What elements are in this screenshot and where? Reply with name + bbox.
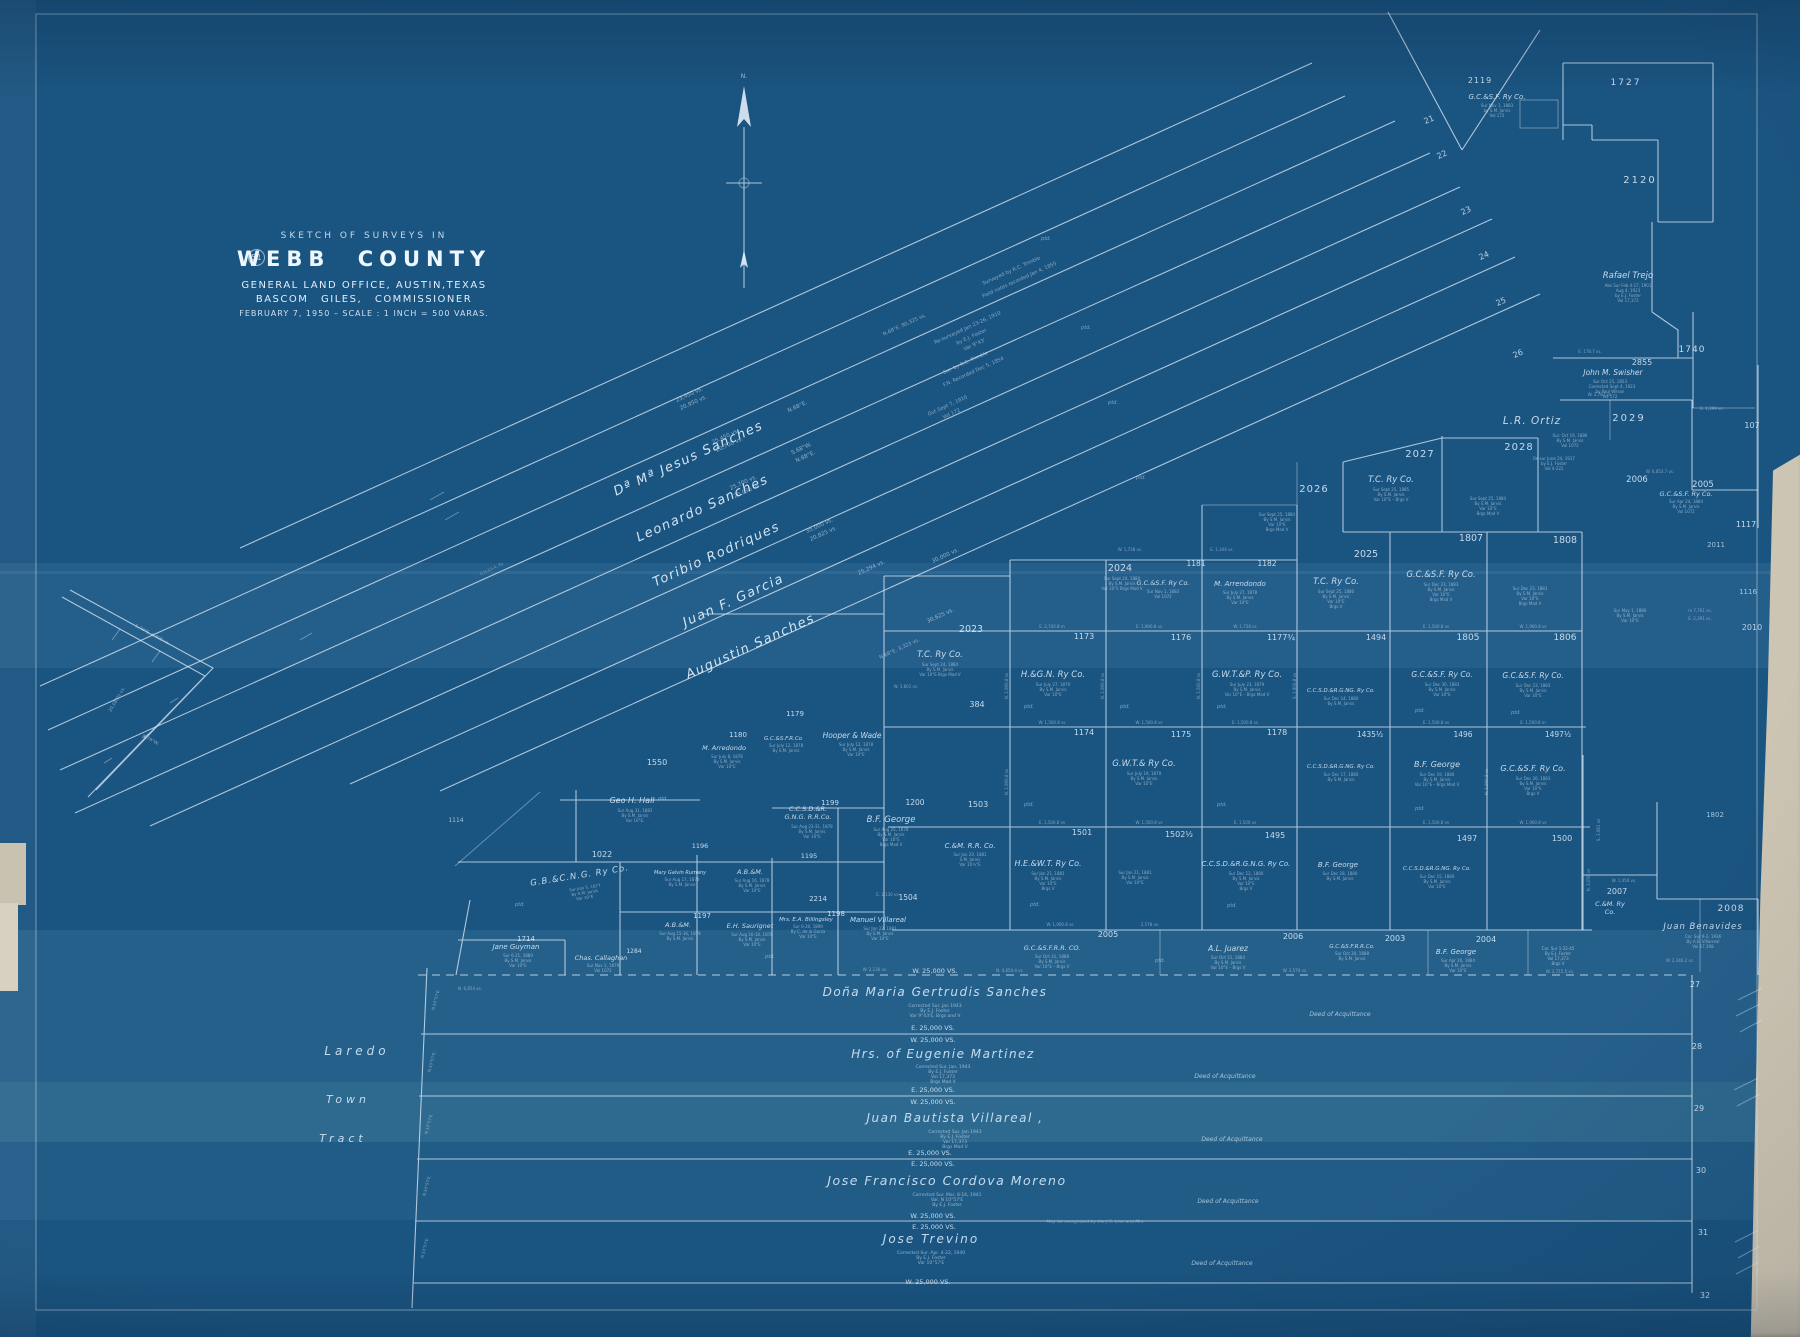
note: By S.M. Jarvis [1038, 959, 1065, 964]
note: By E.J. Foster [916, 1255, 946, 1261]
note: Sur July 12, 1878 [839, 742, 874, 747]
ptd-mark: ptd. [1414, 708, 1425, 714]
note: By S.M. Jarvis [1232, 876, 1259, 881]
note: Sur Aug 17, 1878 [665, 877, 700, 882]
note: Var 10½°E [959, 862, 981, 867]
note: By S.M. Jarvis [1214, 960, 1241, 965]
note: Var 10°E [1432, 592, 1450, 597]
note: Sur Dec 15, 1880 [1420, 874, 1455, 879]
note: S.M. Jarvis [960, 857, 981, 862]
note: Sur Sept 24, 1884 [1104, 576, 1141, 581]
note: By S.M. Jarvis [1130, 776, 1157, 781]
note: Sur 6-20, 1890 [793, 924, 823, 929]
note: By S.M. Jarvis [1377, 492, 1404, 497]
survey-number: 1197 [693, 912, 711, 920]
survey-number: 1805 [1457, 633, 1480, 643]
distance: W. 25,000 VS. [912, 967, 957, 975]
note: By S.M. Jarvis [1108, 581, 1135, 586]
title-block: SKETCH OF SURVEYS IN 51 WEBB COUNTY GENE… [164, 231, 564, 318]
parcel-name: G.C.&S.F. Ry Co. [1136, 579, 1189, 587]
note: Brgs V [1527, 791, 1540, 796]
top-right-lines [1388, 12, 1758, 528]
survey-number: 2006 [1626, 475, 1648, 485]
parcel-name: Mrs. E.A. Billingsley [779, 917, 834, 923]
strip-name: Juan F. Garcia [678, 571, 787, 631]
survey-number: 2026 [1299, 484, 1328, 495]
note: Sur Dec 14, 1880 [1324, 696, 1359, 701]
parcel-name: G.C.&S.F.R.R. CO. [1024, 944, 1081, 952]
parcel-name: Co. [1605, 908, 1616, 916]
survey-number: 1174 [1074, 728, 1094, 737]
survey-number: 1022 [592, 850, 612, 859]
note: Sur Dec 17, 1880 [1324, 772, 1359, 777]
edge-note: N.10°57'E. [430, 989, 440, 1011]
distance: W. 2,346.2 vs. [1666, 958, 1694, 963]
note: By S.M. Jarvis [1226, 595, 1253, 600]
owner-strip-name: Juan Bautista Villareal , [865, 1111, 1044, 1125]
distance: N. 4,654.4 vs. [996, 968, 1024, 973]
distance: W. 1,500.8 vs [1038, 720, 1065, 725]
note: Vol 172 [942, 407, 961, 420]
survey-number: 1550 [647, 758, 667, 767]
survey-number: 2023 [959, 624, 983, 635]
distance: N. 1,900.8 vs [1004, 769, 1009, 796]
note: Sur Jan 21, 1881 [1031, 871, 1065, 876]
survey-number: 2119 [1468, 76, 1492, 85]
note: By S.M. Jarvis [1427, 587, 1454, 592]
note: Sur. Oct 19, 1886 [1553, 433, 1588, 438]
note: Var 10°E – Brgs Mad V [1225, 692, 1270, 697]
survey-number: 1179 [786, 710, 804, 718]
note: Var 10°E [847, 752, 865, 757]
distance: 30,625 vs. [926, 607, 955, 625]
left-cluster-lines [456, 790, 884, 975]
note: Sur Aug 15-16, 1878 [659, 931, 701, 936]
note: Brgs V [1552, 961, 1565, 966]
edge-note: N.10°57'E. [421, 1175, 431, 1197]
survey-number: 1808 [1553, 535, 1577, 546]
survey-number: 1497 [1457, 834, 1477, 843]
sheet-frame [36, 14, 1757, 1310]
note: Sur Sept 25, 1884 [1470, 496, 1507, 501]
note: Var 10°E [1479, 506, 1497, 511]
survey-number: 2004 [1476, 935, 1496, 944]
survey-number: 1740 [1679, 345, 1706, 355]
note: Var 10°E. [626, 818, 645, 823]
survey-number: 1807 [1459, 533, 1483, 544]
road-note: S.79°E. 1,900 vs. [134, 623, 171, 646]
owner-strip-name: Jose Francisco Cordova Moreno [824, 1173, 1066, 1188]
note: Var 10°E [1237, 881, 1255, 886]
survey-number: 1496 [1453, 730, 1472, 739]
note: Vol 17,308 [1692, 944, 1714, 949]
note: Var 10°E [1449, 968, 1467, 973]
note: By S.M. Jarvis [1233, 687, 1260, 692]
ptd-mark: ptd. [1414, 806, 1425, 812]
distance: E. 25,000 VS. [911, 1024, 955, 1032]
survey-number: 1504 [898, 893, 917, 902]
distance: W. 1,500.8 vs [1135, 720, 1162, 725]
parcel-name: G.C.&S.F.R.Co [764, 736, 803, 742]
note: Sur Dec 12, 1880 [1229, 871, 1264, 876]
note: Var 10°E – Brgs V [1211, 965, 1246, 970]
strip-name: Augustin Sanches [683, 611, 818, 683]
note: Brgs Mad V [1266, 527, 1289, 532]
note: By S.M. Jarvis [1519, 688, 1546, 693]
survey-number: 2005 [1098, 930, 1118, 939]
ptd-mark: ptd. [657, 796, 668, 802]
note: Var 10°E [1126, 880, 1144, 885]
note: By E.J. Foster [928, 1069, 958, 1075]
distance: S. 3,081 vs [1596, 819, 1601, 841]
survey-number: 2010 [1742, 623, 1762, 632]
ptd-mark: ptd. [1040, 236, 1051, 242]
note: Sur Dec 23, 1883 [1424, 582, 1459, 587]
survey-number: 2028 [1504, 442, 1533, 453]
strip-number: 21 [1422, 114, 1435, 126]
parcel-name: T.C. Ry Co. [1368, 475, 1414, 485]
parcel-name: G.C.&S.F. Ry Co. [1659, 490, 1712, 498]
distance: N. 3,050 vs [1586, 869, 1591, 892]
note: Var 10°E – Brgs V [1374, 497, 1409, 502]
note: By S.M. Jarvis [1444, 963, 1471, 968]
parcel-name: B.F. George [1436, 948, 1476, 956]
note: By S.M. Jarvis [1423, 879, 1450, 884]
county-title: WEBB COUNTY [164, 247, 564, 271]
note: By S.M. Jarvis [571, 888, 598, 897]
strip-edge-number: 30 [1696, 1166, 1706, 1175]
strip-edge-number: 31 [1698, 1228, 1708, 1237]
distance: 2,578 vs. [1141, 922, 1159, 927]
distance: E. 1,500.8 vs [1039, 820, 1065, 825]
note: Var 10°E [576, 894, 594, 902]
paper-edge-bottom-left [0, 843, 26, 905]
note: By S.M. Jarvis [621, 813, 648, 818]
owner-strip-name: Jose Trevino [881, 1232, 979, 1246]
note: By E.J. Foster [920, 1008, 950, 1014]
note: By S.M. Jarvis [877, 832, 904, 837]
ptd-mark: ptd. [1107, 400, 1118, 406]
note: Brgs Mad V [880, 842, 903, 847]
parcel-name: C.C.S.D.&R.G.N.G. Ry Co. [1202, 860, 1291, 868]
note: Var 10°E [1135, 781, 1153, 786]
north-arrow-icon [726, 86, 762, 288]
distance: E. 1,500.8 vs [1423, 720, 1449, 725]
parcel-name: G.N.G. R.R.Co. [785, 813, 832, 821]
parcel-name: G.C.&S.F. Ry Co. [1468, 93, 1525, 101]
road-lines [62, 590, 213, 797]
note: Sur Aug 31, 1881 [618, 808, 653, 813]
owner-strip-name: Hrs. of Eugenie Martinez [851, 1047, 1035, 1061]
survey-number: 1198 [827, 910, 845, 918]
distance: W. 1,738 vs. [1118, 547, 1142, 552]
survey-number: 1199 [821, 799, 839, 807]
note: Sur Oct 25, 1853 [1593, 379, 1627, 384]
note: Brgs Mad V [1519, 601, 1542, 606]
distance: E. 25,000 VS. [911, 1086, 955, 1094]
distance: W. 25,000 VS. [905, 1278, 950, 1286]
parcel-name: T.C. Ry Co. [1313, 577, 1359, 587]
ptd-mark: ptd. [1216, 704, 1227, 710]
note: G.H.&S.A. Ry [479, 561, 505, 577]
strip-edge-number: 27 [1690, 980, 1700, 989]
parcel-name: B.F. George [867, 815, 916, 825]
strip-edge-number: 28 [1692, 1042, 1702, 1051]
distance: E. 1,500 vs [1234, 820, 1256, 825]
note: Var 10°E [1521, 596, 1539, 601]
survey-number: 2855 [1632, 358, 1652, 367]
distance: E. 1,500.8 vs [1232, 720, 1258, 725]
distance: W. 3,801 vs. [894, 684, 918, 689]
paper-edge-right [1740, 0, 1800, 1337]
note: By S.M. Jarvis [1556, 438, 1583, 443]
distance: N. 1,500.8 vs [1196, 673, 1201, 700]
note: Sur Jan 21, 1881 [1118, 870, 1152, 875]
note: May be recognized by the J.S. Line and M… [1046, 1219, 1144, 1225]
parcel-name: A.B.&M. [736, 868, 763, 876]
distance: E. 1,500.8 vs [1423, 624, 1449, 629]
note: by S.M. Jarvis [1484, 108, 1511, 113]
survey-number: 1175 [1171, 730, 1191, 739]
note: Var 10°E [871, 936, 889, 941]
note: Surveyed by R.C. Trimble [982, 255, 1042, 287]
survey-number: 1173 [1074, 632, 1094, 641]
compass-label: N. [741, 73, 747, 80]
survey-number: 2027 [1405, 449, 1434, 460]
note: Sur Apr 24, 1884 [1669, 499, 1703, 504]
note: Field notes recorded Jan 4, 1855 [982, 261, 1058, 300]
survey-number: 1284 [626, 948, 641, 955]
note: Var 10°57'E [918, 1260, 945, 1266]
survey-number: 1727 [1611, 78, 1642, 88]
parcel-name: G.W.T.& Ry Co. [1112, 759, 1175, 769]
strip-edge-number: 32 [1700, 1291, 1710, 1300]
distance: E. 2,700.8 m [1039, 624, 1065, 629]
parcel-name: C.C.S.D.&R.G.NG. Ry Co. [1403, 866, 1471, 872]
survey-number: 2006 [1283, 932, 1303, 941]
parcel-name: Manuel Villareal [850, 916, 906, 924]
survey-number: 1181 [1186, 559, 1205, 568]
distance: N. 1,900.8 vs [1484, 769, 1489, 796]
note: Sur Dec 30, 1883 [1425, 682, 1460, 687]
distance: E. 1,900.8 vs [1136, 624, 1162, 629]
distance: 25,700 vs. [729, 474, 758, 492]
parcel-name: B.F. George [1414, 760, 1460, 769]
distance: W. 25,000 VS. [910, 1212, 955, 1220]
date-scale-line: FEBRUARY 7, 1950 – SCALE : 1 INCH = 500 … [164, 309, 564, 318]
survey-number: 384 [969, 700, 984, 709]
survey-number: 2029 [1612, 413, 1645, 424]
parcel-name: M. Arrendondo [1214, 580, 1266, 588]
note: by E.J. Foster [1615, 293, 1641, 298]
distance: 25,294 vs. [857, 559, 886, 577]
note: Vol 1072 [1677, 509, 1695, 514]
distance: N.68°E. 3,323 vs. [879, 637, 922, 661]
distance: E. 1,344 vs. [1210, 547, 1234, 552]
note: By S.M. Jarvis [1322, 594, 1349, 599]
note: Sur July 23, 1879 [1230, 682, 1265, 687]
distance: W. 3,570 vs. [1283, 968, 1307, 973]
parcel-name: G.C.&S.F. Ry Co. [1500, 764, 1565, 773]
note: Vol 17,373 [943, 1139, 967, 1145]
note: Sur July 12, 1878 [769, 743, 804, 748]
note: Sur July 19, 1879 [1127, 771, 1162, 776]
parcel-name: G.C.&S.F. Ry Co. [1411, 670, 1472, 679]
strip-name: Toribio Rodriques [651, 519, 783, 590]
note: Out Sept 7, 1910 [927, 395, 968, 418]
ptd-mark: ptd. [1135, 475, 1146, 481]
owner-strip-name: Doña Maria Gertrudis Sanches [823, 985, 1048, 999]
note: Var 10°E [718, 764, 736, 769]
note: By S.M. Jarvis [738, 937, 765, 942]
note: Vol 17,373 [1547, 956, 1569, 961]
edge-note: N.10°57'E. [423, 1113, 433, 1135]
deed-label: Deed of Acquittance [1197, 1198, 1259, 1205]
survey-grid-lines [702, 436, 1592, 930]
survey-number: 1503 [968, 800, 988, 809]
note: Sur. by R.C. Trimble [942, 350, 989, 376]
parcel-name: C.C.S.D.&R. [789, 805, 827, 813]
note: By S.M. Jarvis [1327, 777, 1354, 782]
note: By S.M. Jarvis [926, 667, 953, 672]
distance: 20,700 vs. [715, 436, 744, 454]
survey-number: 1435½ [1357, 730, 1383, 739]
ptd-mark: ptd. [1226, 903, 1237, 909]
parcel-name: L.R. Ortiz [1503, 415, 1561, 427]
map-canvas: N.Dª Mª Jesus SanchesLeonardo SanchesTor… [0, 0, 1800, 1337]
survey-number: 2003 [1385, 934, 1405, 943]
note: Var 10°E [1428, 884, 1446, 889]
note: By S.M. Jarvis [713, 759, 740, 764]
distance: W. 6,853.7 vs. [1646, 469, 1674, 474]
distance: S. 1,900.8 vs [1292, 673, 1297, 699]
note: Cor. Sur 1-22-45 [1542, 946, 1575, 951]
survey-number: 1114 [448, 817, 463, 824]
survey-number: 1495 [1265, 831, 1285, 840]
blueprint-sheet: N.Dª Mª Jesus SanchesLeonardo SanchesTor… [0, 0, 1800, 1337]
note: By S.M. Jarvis [504, 958, 531, 963]
parcel-name: John M. Swisher [1581, 368, 1643, 377]
deed-label: Deed of Acquittance [1191, 1260, 1253, 1267]
bearing: S.68°W. [791, 442, 813, 456]
ptd-mark: ptd. [1510, 710, 1521, 716]
survey-number: 1500 [1552, 834, 1572, 843]
survey-number: 2025 [1354, 549, 1378, 560]
note: Abs Sur Feb 4-17, 1901 [1605, 283, 1652, 288]
distance: E. 25,000 VS. [912, 1223, 956, 1231]
note: Corrected Sept 4, 1923 [1589, 384, 1636, 389]
distance: E. 2,391 vs. [1688, 616, 1712, 621]
parcel-name: G.C.&S.F.R.R.Co. [1329, 944, 1375, 950]
note: Sur Aug 16, 1878 [735, 878, 770, 883]
note: Var 10°E [1231, 600, 1249, 605]
area-label: Laredo [324, 1044, 389, 1058]
strip-edge-number: 29 [1694, 1104, 1704, 1113]
distance: W. 2,715.5 vs. [1546, 969, 1574, 974]
note: Brgs Mad V [930, 1079, 956, 1085]
survey-number: 1502½ [1165, 830, 1193, 839]
note: By S.M. Jarvis [1327, 701, 1354, 706]
parcel-name: C.&M. Ry [1595, 900, 1625, 908]
note: Vol 172 [1603, 394, 1618, 399]
note: Sur July 5, 1877 [569, 882, 602, 892]
note: Sur 6-21, 1880 [503, 953, 533, 958]
note: Vol 1072 [594, 968, 612, 973]
note: By S.M. Jarvis [738, 883, 765, 888]
note: Sur Oct 31, 1884 [1211, 955, 1245, 960]
distance: W. 2,130 vs. [863, 967, 887, 972]
note: Var 9°43' [963, 338, 987, 353]
note: Var 10°E [1039, 881, 1057, 886]
note: Vol 17,373 [931, 1074, 955, 1080]
distance: N.68°E. 80,325 vs. [882, 312, 927, 337]
strip-number: 25 [1494, 296, 1507, 308]
note: By S.M. Jarvis [668, 882, 695, 887]
note: Brgs V [1330, 604, 1343, 609]
ptd-mark: ptd. [1119, 704, 1130, 710]
note: By S.M. Jarvis [1326, 876, 1353, 881]
note: Sur Sept 24, 1884 [922, 662, 959, 667]
note: By S.M. Jarvis [866, 931, 893, 936]
note: Var 10°E Brgs Mad V [1101, 586, 1143, 591]
note: Brgs Mad V [942, 1144, 968, 1150]
note: Brgs Mad V [1430, 597, 1453, 602]
distance: 20,035 vs. [733, 482, 762, 500]
note: Var 9°43'E, Brgs and V [909, 1013, 961, 1019]
parcel-name: Chas. Callaghan [575, 954, 628, 962]
note: By A.E. Villarreal [1687, 939, 1720, 944]
ptd-mark: ptd. [514, 902, 525, 908]
note: Var 10°E [743, 888, 761, 893]
parcel-name: H.&G.N. Ry Co. [1021, 670, 1085, 680]
distance: E. 2,130 vs. [876, 892, 900, 897]
distance: 35,000 vs. [805, 517, 834, 535]
parcel-name: E.H. Saurignet [727, 922, 774, 930]
note: By S.M. Jarvis [1034, 876, 1061, 881]
strip-number: 22 [1435, 149, 1448, 161]
note: Sur Sept 25, 1884 [1259, 512, 1296, 517]
note: Var 10°E [1433, 692, 1451, 697]
survey-number: 1802 [1706, 811, 1724, 819]
note: by Paul Wilson [1596, 389, 1625, 394]
note: Var 10°E – Brgs V [1035, 964, 1070, 969]
note: By S.M. Jarvis [842, 747, 869, 752]
note: Sur Nov 1, 1883 [1147, 589, 1180, 594]
strip-name: Dª Mª Jesus Sanches [611, 418, 765, 499]
note: By C. de la Garza [791, 929, 826, 934]
distance: 30,000 vs. [931, 547, 960, 565]
road-note: N.79°W. [141, 733, 160, 747]
parcel-name: C.C.S.D.&R.G.NG. Ry Co. [1307, 764, 1375, 770]
note: Var 10°E [882, 837, 900, 842]
note: Brgs V [1240, 886, 1253, 891]
survey-number: 1116 [1739, 588, 1757, 596]
note: Sur July 27, 1879 [1036, 682, 1071, 687]
parcel-name: Hooper & Wade [823, 731, 882, 740]
sheet-number-badge: 51 [248, 249, 265, 266]
note: By S.M. Jarvis [1474, 501, 1501, 506]
paper-edge-bottom-left-2 [0, 903, 18, 991]
note: Sur Aug 23-31, 1878 [791, 824, 833, 829]
parcel-name: B.F. George [1318, 861, 1358, 869]
area-label: Tract [319, 1132, 367, 1145]
distance: E. 25,000 VS. [911, 1160, 955, 1168]
parcel-name: T.C. Ry Co. [917, 650, 963, 660]
distance: N. 1,900.8 vs [1100, 673, 1105, 700]
note: Sur Aug 16-18, 1878 [731, 932, 773, 937]
note: Sur Dec 26, 1883 [1516, 776, 1551, 781]
note: Var 10°E [743, 942, 761, 947]
